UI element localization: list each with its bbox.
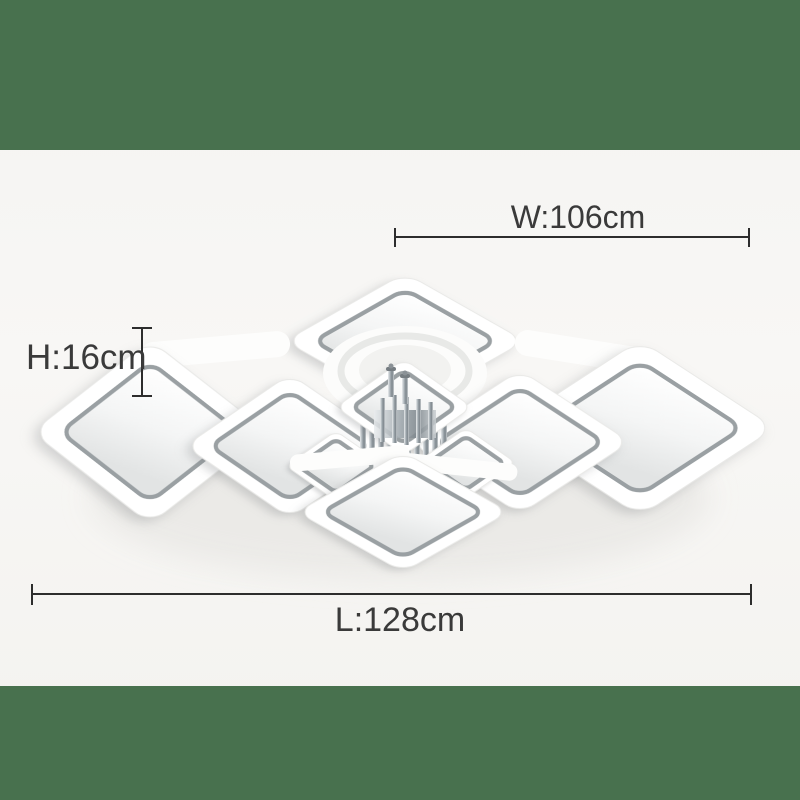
length-dimension-cap-right [750,584,752,605]
height-dimension-label: H:16cm [26,340,147,375]
height-dimension-cap-bottom [132,395,152,397]
length-dimension-cap-left [31,584,33,605]
length-dimension-label: L:128cm [280,603,520,637]
width-dimension-cap-left [394,228,396,247]
width-dimension-line [395,236,749,238]
width-dimension-label: W:106cm [458,201,698,233]
ceiling-lamp-photo [0,0,800,800]
height-dimension-cap-top [132,327,152,329]
product-page-image: W:106cm H:16cm L:128cm [0,0,800,800]
length-dimension-line [32,593,752,595]
width-dimension-cap-right [748,228,750,247]
